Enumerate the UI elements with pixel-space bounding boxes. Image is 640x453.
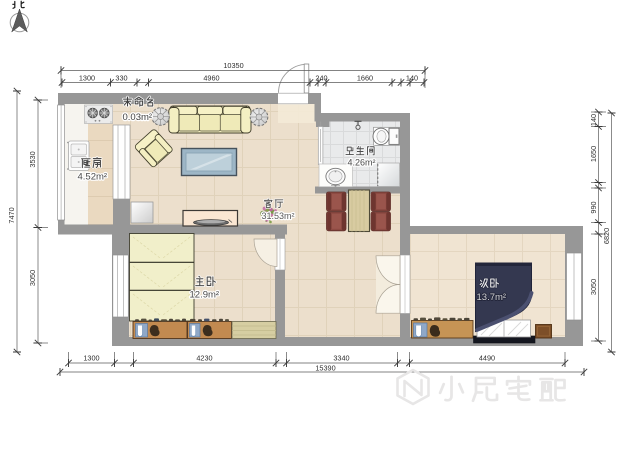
svg-text:990: 990 [589, 201, 598, 213]
svg-text:3530: 3530 [28, 151, 37, 167]
svg-text:140: 140 [406, 73, 418, 82]
svg-text:4230: 4230 [196, 354, 212, 363]
svg-text:7470: 7470 [7, 207, 16, 223]
svg-text:4.52m²: 4.52m² [78, 172, 108, 183]
svg-text:1660: 1660 [357, 73, 373, 82]
svg-text:330: 330 [115, 73, 127, 82]
svg-text:140: 140 [589, 114, 598, 126]
svg-text:31.53m²: 31.53m² [262, 211, 295, 221]
svg-text:10350: 10350 [223, 61, 243, 70]
svg-text:4.26m²: 4.26m² [348, 158, 376, 168]
svg-text:12.9m²: 12.9m² [190, 290, 220, 301]
svg-text:3340: 3340 [333, 354, 349, 363]
svg-text:3050: 3050 [28, 270, 37, 286]
svg-text:0.03m²: 0.03m² [123, 112, 153, 123]
svg-text:13.7m²: 13.7m² [477, 292, 507, 303]
svg-text:6820: 6820 [602, 228, 611, 244]
svg-text:15390: 15390 [315, 363, 335, 372]
svg-text:3050: 3050 [589, 279, 598, 295]
svg-text:1300: 1300 [83, 354, 99, 363]
svg-text:4960: 4960 [203, 73, 219, 82]
svg-text:240: 240 [315, 73, 327, 82]
svg-text:4490: 4490 [479, 354, 495, 363]
svg-text:1650: 1650 [589, 146, 598, 162]
svg-text:1300: 1300 [79, 73, 95, 82]
